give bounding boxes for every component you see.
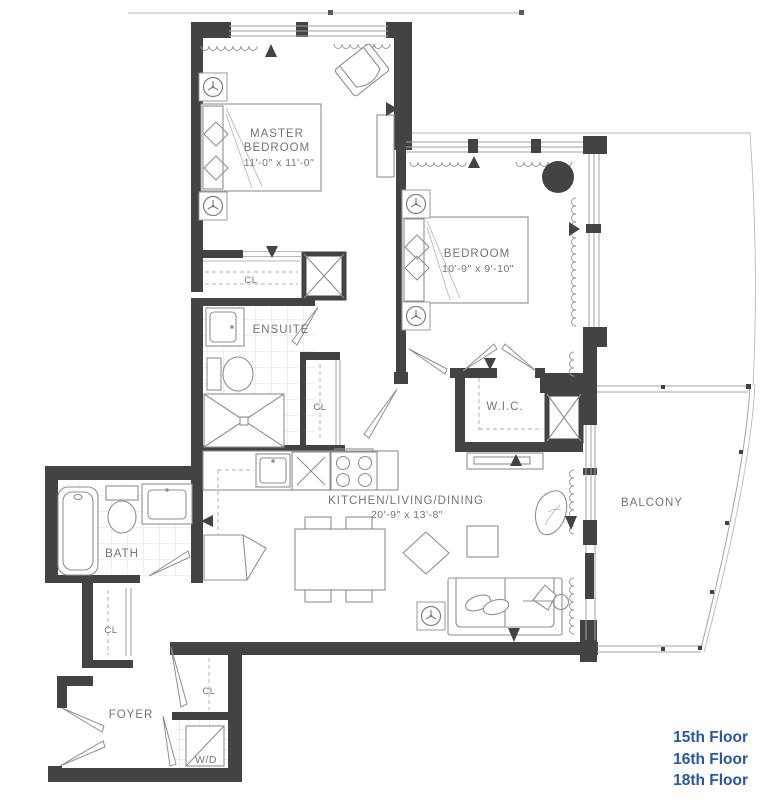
wall-bedroom-left-cap	[394, 372, 408, 384]
bath-toilet-tank	[106, 486, 138, 500]
window-marker	[569, 222, 580, 236]
wall-foyer-jog	[57, 676, 93, 686]
foyer-closet-door[interactable]	[171, 647, 187, 707]
balcony	[597, 384, 755, 652]
floor-link-18[interactable]: 18th Floor	[673, 770, 748, 792]
master-bedroom-dims: 11'-0" x 11'-0"	[244, 157, 315, 169]
wall-living-bottom	[242, 642, 598, 655]
bathtub	[58, 487, 98, 575]
wall-bathcl-left	[82, 583, 93, 668]
foyer-label: FOYER	[109, 709, 154, 721]
bath-closet-label: CL	[104, 625, 117, 636]
bedroom-nightstand-lamp	[402, 190, 430, 218]
wall-bedroom-bottom-b	[535, 368, 545, 378]
master-window	[229, 26, 388, 36]
balcony-rail-curve	[701, 386, 750, 648]
wall-right-seg2	[583, 520, 597, 545]
master-nightstand-lamp	[199, 73, 227, 101]
wall-right-seg1	[583, 347, 597, 425]
wall-hallcl-left	[300, 360, 306, 447]
dining-chair	[346, 590, 372, 602]
dining-chair	[305, 590, 331, 602]
master-bedroom-label-2: BEDROOM	[244, 142, 310, 154]
master-bedroom-label-1: MASTER	[250, 128, 304, 140]
wall-spine-left	[191, 306, 203, 583]
entry-door-leaf[interactable]	[60, 741, 105, 766]
ensuite-toilet-tank	[207, 358, 221, 390]
bath-label: BATH	[105, 548, 139, 560]
bedroom-right-window	[589, 154, 599, 327]
wic-label: W.I.C.	[486, 401, 523, 413]
roofline-tick	[328, 10, 333, 15]
window-marker	[468, 156, 480, 168]
wall-bathcl-bottom	[82, 660, 133, 668]
wic-door-right[interactable]	[502, 344, 536, 371]
wall-bath-left	[45, 466, 58, 583]
wall-foyer-left	[57, 686, 67, 708]
bedroom-window-post	[468, 139, 478, 153]
bedroom-top-window	[406, 142, 583, 152]
wall-bedroom-topright	[583, 136, 607, 154]
balcony-posts	[661, 384, 751, 651]
wall-master-topleft	[191, 22, 231, 38]
hall-closet-front	[336, 360, 340, 445]
balcony-rail-top	[597, 386, 750, 392]
wall-bedroom-bottom-a	[450, 368, 462, 378]
floor-link-16[interactable]: 16th Floor	[673, 749, 748, 771]
plant-leaves	[545, 505, 561, 525]
wall-wic-right	[540, 373, 583, 393]
bedroom-window-post	[531, 139, 541, 153]
coffee-table	[467, 526, 498, 557]
roofline-tick	[519, 10, 524, 15]
column	[542, 161, 574, 193]
master-armchair	[334, 43, 390, 97]
hall-door[interactable]	[364, 389, 397, 438]
bedroom-dims: 10'-9" x 9'-10"	[442, 263, 514, 275]
floor-lamp	[417, 602, 445, 630]
floor-link-15[interactable]: 15th Floor	[673, 727, 748, 749]
wall-hallcl-top	[300, 352, 340, 360]
bedroom-right-post	[586, 224, 601, 233]
kitchen-label: KITCHEN/LIVING/DINING	[328, 495, 484, 507]
balcony-rail-bottom	[597, 646, 703, 652]
wic-door-left[interactable]	[463, 344, 497, 371]
laundry-label: W/D	[195, 754, 217, 766]
bedroom-door[interactable]	[409, 349, 447, 374]
balcony-door-slab	[585, 553, 594, 599]
laundry-door[interactable]	[163, 716, 176, 766]
entry-door-leaf[interactable]	[62, 708, 104, 732]
wall-foyer-right	[228, 642, 242, 782]
dining-chair	[346, 517, 372, 529]
shower-drain	[240, 417, 248, 425]
ensuite-toilet-bowl	[223, 357, 253, 391]
window-marker	[265, 44, 277, 57]
ottoman	[403, 532, 449, 574]
foyer-closet-label: CL	[202, 686, 215, 697]
bath-toilet-bowl	[108, 501, 136, 533]
bedroom-furniture	[402, 161, 574, 330]
curtain-master-left	[201, 46, 257, 51]
media-console	[467, 453, 543, 469]
wall-wic-left	[455, 368, 465, 452]
wall-master-right	[394, 22, 412, 150]
dining-table	[295, 529, 385, 590]
ensuite-vanity	[206, 308, 244, 346]
wall-closet-bottom	[191, 298, 315, 306]
wall-bedroom-right-block	[583, 327, 607, 347]
balcony-rail-curve-outer	[704, 384, 755, 652]
curtain-balcony-door	[570, 578, 575, 634]
plant	[535, 491, 566, 535]
kitchen-dims: 20'-9" x 13'-8"	[371, 509, 443, 521]
balcony-label: BALCONY	[621, 497, 683, 509]
hall-closet-label: CL	[313, 402, 326, 413]
wall-laundry-top	[172, 712, 228, 720]
wall-foyer-bottom	[48, 768, 238, 782]
floorplan-drawing: MASTER BEDROOM 11'-0" x 11'-0" BEDROOM 1…	[0, 0, 763, 800]
kitchen-desk	[204, 535, 266, 580]
bath-closet-front	[126, 588, 131, 656]
master-dresser	[377, 115, 394, 177]
bath-faucet	[165, 488, 169, 492]
curtain-bedroom-left	[410, 162, 466, 167]
floor-selector: 15th Floor 16th Floor 18th Floor	[673, 727, 748, 792]
bedroom-nightstand-lamp	[402, 302, 430, 330]
ensuite-faucet	[230, 325, 234, 329]
ensuite-label: ENSUITE	[253, 324, 310, 336]
floorplan-page: MASTER BEDROOM 11'-0" x 11'-0" BEDROOM 1…	[0, 0, 763, 800]
master-nightstand-lamp	[199, 192, 227, 220]
wall-bath-top	[45, 466, 191, 480]
wall-master-bottom	[191, 250, 243, 258]
bedroom-label: BEDROOM	[444, 248, 510, 260]
curtain-small	[570, 352, 575, 376]
curtain-bedroom-right	[572, 198, 577, 326]
wall-master-top-post	[296, 22, 308, 37]
kitchen-faucet	[271, 459, 275, 463]
wall-bath-bottom	[45, 575, 140, 583]
master-closet-label: CL	[244, 275, 257, 286]
wall-living-corner	[580, 620, 597, 662]
marker	[565, 516, 577, 530]
dining-chair	[305, 517, 331, 529]
